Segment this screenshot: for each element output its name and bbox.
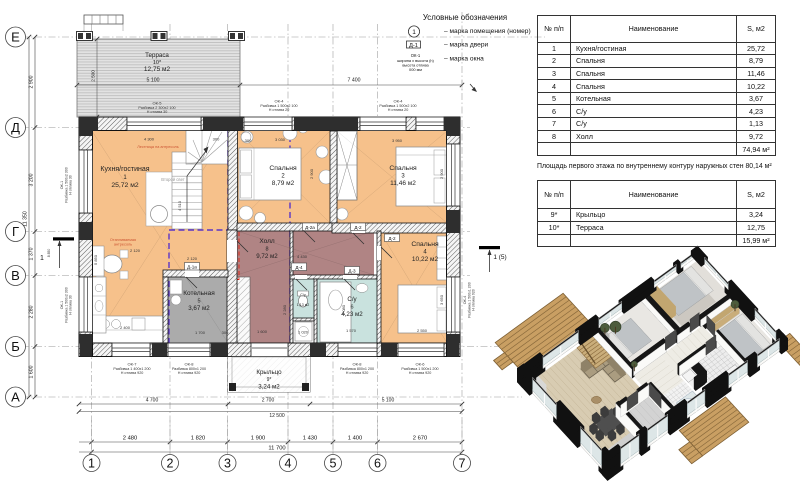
- svg-text:– марка окна: – марка окна: [444, 56, 484, 63]
- svg-text:11 350: 11 350: [23, 211, 29, 227]
- svg-text:5: 5: [197, 299, 200, 305]
- svg-text:ОК-6: ОК-6: [416, 362, 426, 367]
- svg-text:8 850: 8 850: [47, 249, 51, 258]
- svg-text:Н отлива 920: Н отлива 920: [409, 371, 432, 375]
- svg-text:Котельная: Котельная: [183, 290, 215, 297]
- svg-text:Е: Е: [11, 30, 20, 45]
- svg-text:1 820: 1 820: [191, 436, 206, 442]
- svg-text:Н отлива 30: Н отлива 30: [69, 295, 73, 315]
- svg-text:1,13 м2: 1,13 м2: [297, 303, 309, 307]
- svg-text:Н отлива 30: Н отлива 30: [147, 110, 168, 114]
- svg-text:1 (5): 1 (5): [493, 254, 506, 261]
- svg-text:4 510: 4 510: [177, 200, 182, 211]
- svg-text:1 020: 1 020: [298, 330, 309, 335]
- svg-text:5: 5: [330, 457, 337, 471]
- svg-text:9*: 9*: [267, 377, 272, 383]
- svg-text:1 600: 1 600: [29, 365, 35, 378]
- svg-text:3 950: 3 950: [392, 138, 403, 143]
- svg-text:4 700: 4 700: [146, 398, 159, 404]
- svg-text:антресоль: антресоль: [114, 243, 132, 247]
- svg-text:25,72 м2: 25,72 м2: [111, 182, 139, 189]
- svg-text:Д: Д: [11, 120, 20, 135]
- svg-text:С/у: С/у: [300, 293, 306, 297]
- svg-text:6: 6: [350, 305, 353, 311]
- svg-text:2 080: 2 080: [341, 304, 346, 315]
- svg-text:1 370: 1 370: [29, 247, 35, 260]
- svg-text:Н отлива 920: Н отлива 920: [178, 371, 201, 375]
- svg-text:2 900: 2 900: [439, 168, 444, 179]
- svg-text:7: 7: [459, 457, 466, 471]
- svg-text:3,67 м2: 3,67 м2: [188, 305, 210, 312]
- svg-text:2 280: 2 280: [29, 305, 35, 318]
- svg-text:ОК-7: ОК-7: [128, 362, 138, 367]
- svg-text:– марка двери: – марка двери: [444, 42, 489, 49]
- svg-text:2 900: 2 900: [29, 75, 35, 88]
- svg-text:Кухня/гостиная: Кухня/гостиная: [100, 166, 149, 173]
- svg-text:ОК-8: ОК-8: [353, 362, 363, 367]
- svg-text:2 670: 2 670: [413, 436, 428, 442]
- svg-text:Н отлива 20: Н отлива 20: [269, 108, 290, 112]
- svg-text:Д-1: Д-1: [409, 43, 418, 49]
- svg-text:3 030: 3 030: [275, 137, 286, 142]
- svg-text:Д-4: Д-4: [295, 265, 303, 270]
- svg-text:Лестница на антресоль: Лестница на антресоль: [137, 145, 178, 149]
- svg-text:Д-2: Д-2: [388, 236, 396, 241]
- svg-text:Отапливаемая: Отапливаемая: [110, 238, 136, 242]
- svg-text:5 850: 5 850: [93, 254, 98, 265]
- svg-text:3,24 м2: 3,24 м2: [258, 384, 280, 391]
- svg-text:12 500: 12 500: [269, 413, 285, 419]
- svg-text:С/у: С/у: [347, 296, 357, 303]
- svg-text:1 400: 1 400: [348, 436, 363, 442]
- svg-text:1 600: 1 600: [257, 329, 268, 334]
- svg-text:Спальня: Спальня: [269, 165, 297, 172]
- svg-text:8: 8: [265, 247, 268, 253]
- svg-text:6: 6: [374, 457, 381, 471]
- svg-text:Спальня: Спальня: [389, 165, 417, 172]
- svg-text:2: 2: [167, 457, 174, 471]
- svg-text:1 900: 1 900: [251, 436, 266, 442]
- svg-text:10,22 м2: 10,22 м2: [412, 256, 439, 263]
- svg-text:Н отлива 20: Н отлива 20: [388, 108, 409, 112]
- svg-text:11,46 м2: 11,46 м2: [390, 180, 416, 187]
- svg-text:ОК-4: ОК-4: [394, 99, 404, 104]
- svg-text:2 900: 2 900: [309, 168, 314, 179]
- svg-text:1: 1: [40, 255, 44, 262]
- svg-text:4 430: 4 430: [297, 254, 308, 259]
- svg-text:300: 300: [222, 330, 229, 335]
- svg-text:2 500: 2 500: [91, 70, 96, 82]
- svg-text:1 430: 1 430: [303, 436, 318, 442]
- svg-text:3 650: 3 650: [439, 294, 444, 305]
- svg-text:Условные обозначения: Условные обозначения: [423, 13, 507, 22]
- svg-text:2 480: 2 480: [123, 436, 138, 442]
- svg-text:7 400: 7 400: [348, 78, 361, 84]
- svg-text:300: 300: [245, 138, 252, 143]
- svg-text:Б: Б: [11, 339, 20, 354]
- svg-text:1: 1: [88, 457, 95, 471]
- svg-text:Г: Г: [12, 224, 19, 239]
- svg-text:Н отлива 920: Н отлива 920: [346, 371, 369, 375]
- svg-text:12,75 м2: 12,75 м2: [144, 66, 171, 73]
- svg-text:4 300: 4 300: [144, 137, 155, 142]
- svg-text:Д-2а: Д-2а: [305, 225, 315, 230]
- svg-text:Холл: Холл: [259, 238, 275, 245]
- svg-text:В: В: [11, 268, 20, 283]
- svg-text:5 100: 5 100: [147, 78, 160, 84]
- svg-text:ОК-4: ОК-4: [275, 99, 285, 104]
- svg-text:4: 4: [285, 457, 292, 471]
- svg-text:Крыльцо: Крыльцо: [256, 369, 282, 376]
- svg-text:300: 300: [213, 137, 220, 142]
- svg-text:2 280: 2 280: [282, 304, 287, 315]
- svg-text:Д-1а: Д-1а: [187, 264, 197, 269]
- svg-text:Н отлива 30: Н отлива 30: [69, 175, 73, 195]
- svg-text:3: 3: [224, 457, 231, 471]
- svg-text:000 мм: 000 мм: [409, 67, 422, 72]
- svg-text:Д-2: Д-2: [354, 225, 362, 230]
- svg-text:А: А: [11, 390, 20, 405]
- svg-text:1 700: 1 700: [195, 330, 206, 335]
- svg-text:9,72 м2: 9,72 м2: [256, 253, 278, 260]
- svg-text:11 700: 11 700: [268, 446, 285, 452]
- svg-text:ОК-5: ОК-5: [153, 101, 163, 106]
- svg-text:1: 1: [412, 29, 416, 36]
- svg-text:2 120: 2 120: [187, 256, 198, 261]
- svg-text:2 400: 2 400: [120, 325, 131, 330]
- svg-text:ОК-8: ОК-8: [185, 362, 195, 367]
- svg-text:1 570: 1 570: [346, 328, 357, 333]
- svg-text:Спальня: Спальня: [411, 241, 439, 248]
- svg-text:– марка помещения (номер): – марка помещения (номер): [444, 28, 531, 35]
- svg-text:3 200: 3 200: [29, 173, 35, 186]
- svg-text:5 100: 5 100: [382, 398, 395, 404]
- svg-text:2 550: 2 550: [417, 328, 428, 333]
- svg-text:8,79 м2: 8,79 м2: [272, 180, 295, 187]
- svg-text:2 120: 2 120: [130, 248, 141, 253]
- svg-text:2 700: 2 700: [262, 398, 275, 404]
- svg-text:Н отлива 920: Н отлива 920: [121, 371, 144, 375]
- svg-text:Второй свет: Второй свет: [161, 177, 184, 182]
- svg-text:Д-3: Д-3: [348, 268, 356, 273]
- svg-text:Н отлива 920: Н отлива 920: [472, 289, 476, 311]
- svg-text:Терраса: Терраса: [145, 52, 169, 59]
